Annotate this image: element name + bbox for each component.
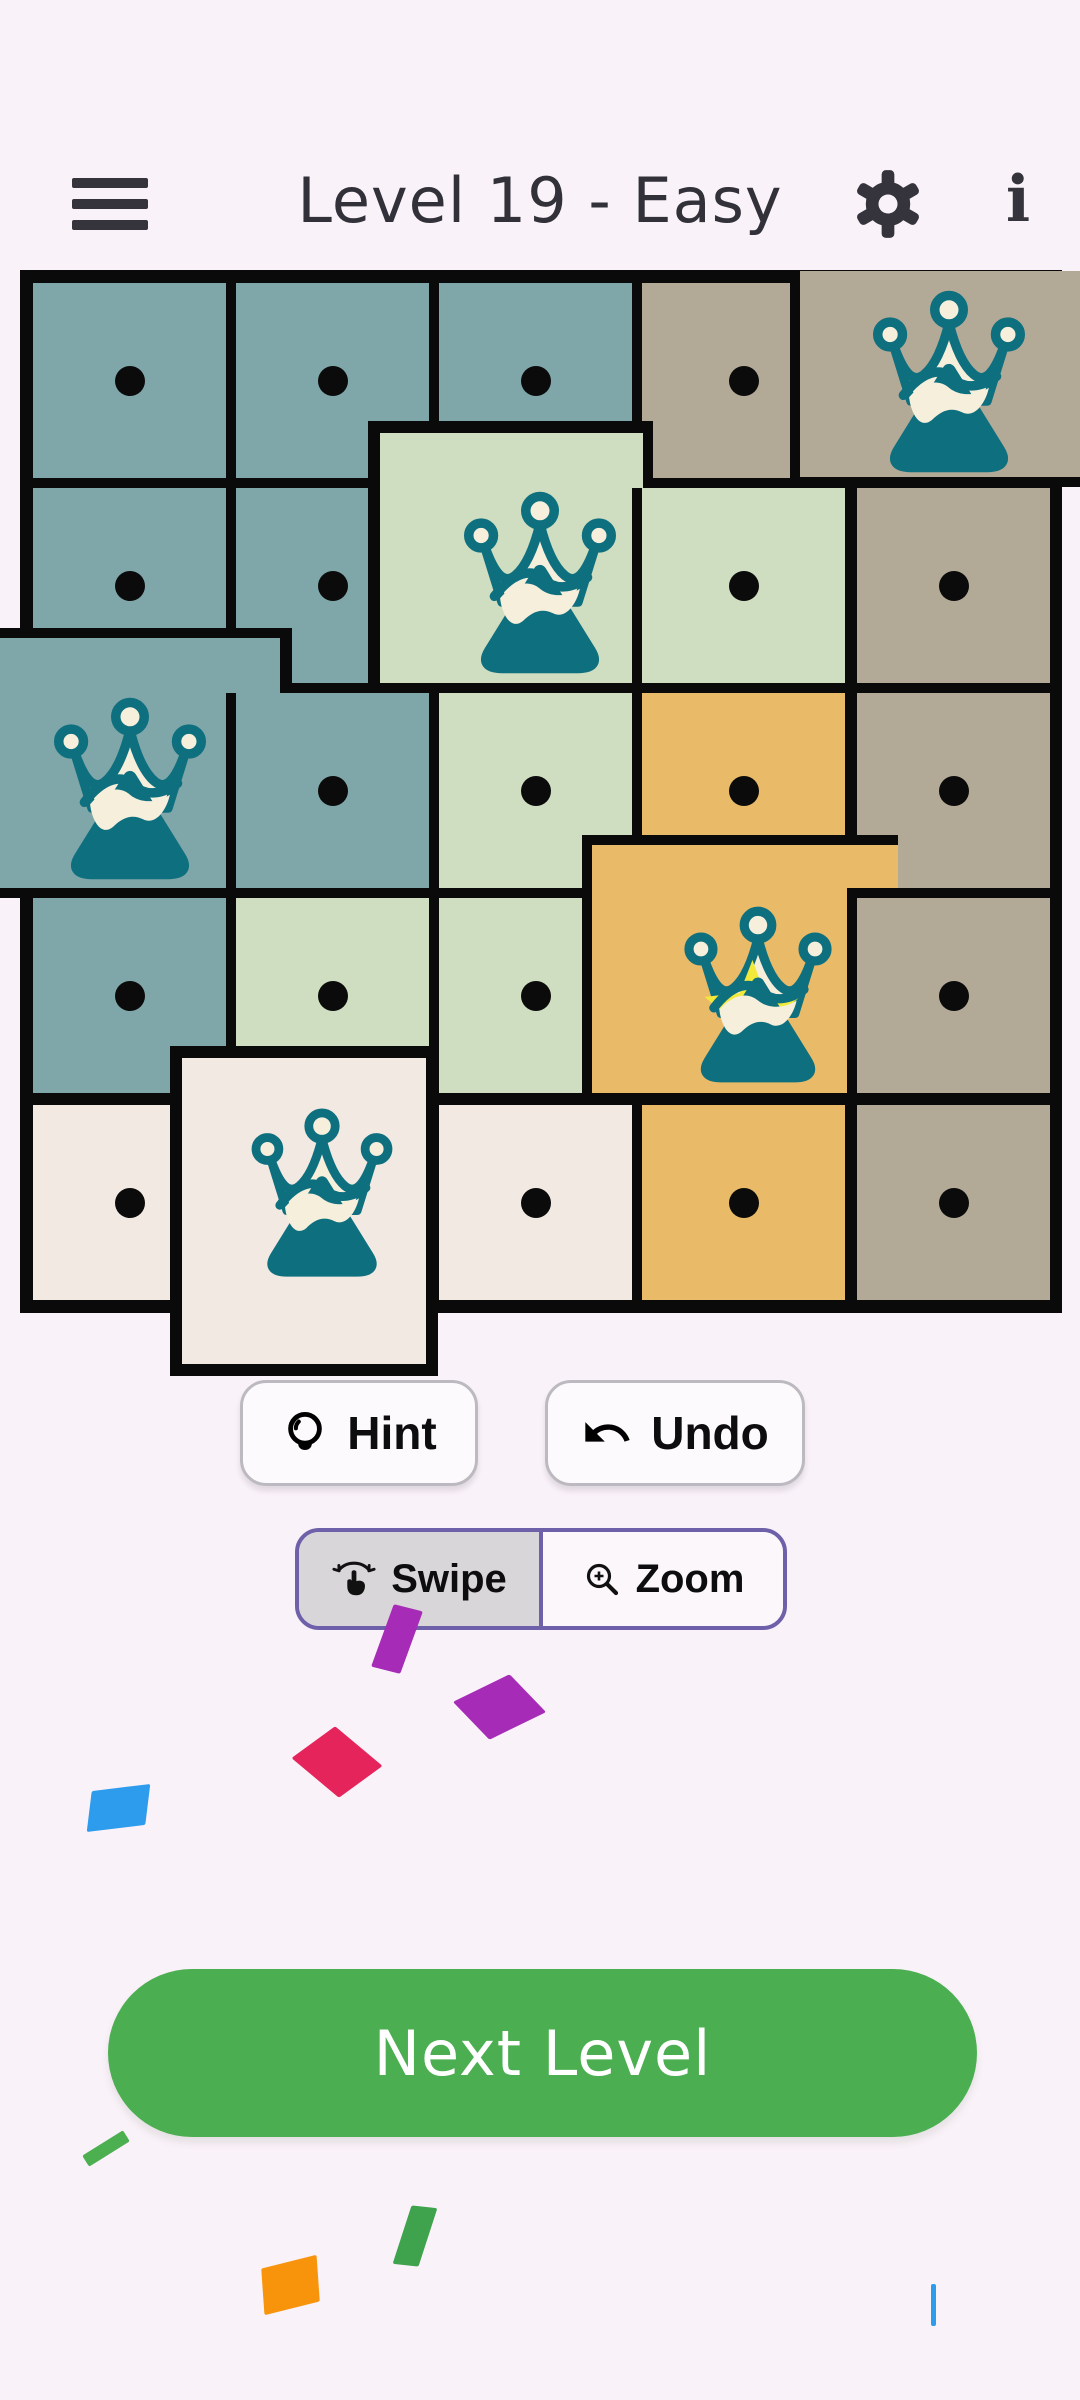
dot-marker	[729, 571, 759, 601]
dot-marker	[115, 1188, 145, 1218]
dot-marker	[729, 366, 759, 396]
board-cell-r5c2[interactable]	[170, 1046, 438, 1376]
board-cell-r2c4[interactable]	[632, 488, 845, 683]
phone-screen: Level 19 - Easy i	[0, 0, 1080, 2400]
hint-button[interactable]: Hint	[240, 1380, 478, 1486]
swipe-label: Swipe	[391, 1557, 507, 1602]
dot-marker	[521, 1188, 551, 1218]
board-cell-r5c4[interactable]	[642, 1105, 845, 1300]
board-cell-r1c5[interactable]	[790, 271, 1080, 487]
board-cell-r2c5[interactable]	[857, 488, 1050, 683]
dot-marker	[939, 981, 969, 1011]
board-cell-r4c5[interactable]	[847, 888, 1050, 1093]
confetti-piece	[931, 2284, 936, 2326]
undo-button[interactable]: Undo	[545, 1380, 805, 1486]
dot-marker	[939, 571, 969, 601]
queen-crown-icon	[35, 694, 225, 884]
swipe-hand-icon	[331, 1556, 377, 1602]
dot-marker	[115, 571, 145, 601]
undo-label: Undo	[651, 1406, 769, 1460]
confetti-piece	[87, 1784, 151, 1832]
queen-crown-icon	[854, 287, 1044, 477]
queen-crown-star-icon	[666, 903, 850, 1087]
dot-marker	[318, 981, 348, 1011]
dot-marker	[318, 366, 348, 396]
lightbulb-icon	[281, 1409, 329, 1457]
dot-marker	[318, 571, 348, 601]
next-level-button[interactable]: Next Level	[108, 1969, 977, 2137]
dot-marker	[729, 1188, 759, 1218]
zoom-label: Zoom	[636, 1557, 745, 1602]
hint-label: Hint	[347, 1406, 436, 1460]
board-cell-r5c5[interactable]	[857, 1105, 1050, 1300]
magnifier-plus-icon	[582, 1559, 622, 1599]
undo-arrow-icon	[581, 1407, 633, 1459]
dot-marker	[115, 981, 145, 1011]
board-cell-r3c2[interactable]	[226, 693, 429, 888]
dot-marker	[521, 366, 551, 396]
dot-marker	[521, 981, 551, 1011]
queen-crown-icon	[445, 488, 635, 678]
dot-marker	[729, 776, 759, 806]
mode-toggle: Swipe Zoom	[295, 1528, 787, 1630]
dot-marker	[521, 776, 551, 806]
dot-marker	[939, 776, 969, 806]
board-cell-r1c1[interactable]	[33, 283, 226, 478]
zoom-mode-button[interactable]: Zoom	[539, 1532, 783, 1626]
queen-crown-icon	[234, 1105, 410, 1281]
dot-marker	[939, 1188, 969, 1218]
board-cell-r2c3[interactable]	[368, 421, 653, 693]
dot-marker	[318, 776, 348, 806]
dot-marker	[115, 366, 145, 396]
board-cell-r5c3[interactable]	[439, 1105, 632, 1300]
